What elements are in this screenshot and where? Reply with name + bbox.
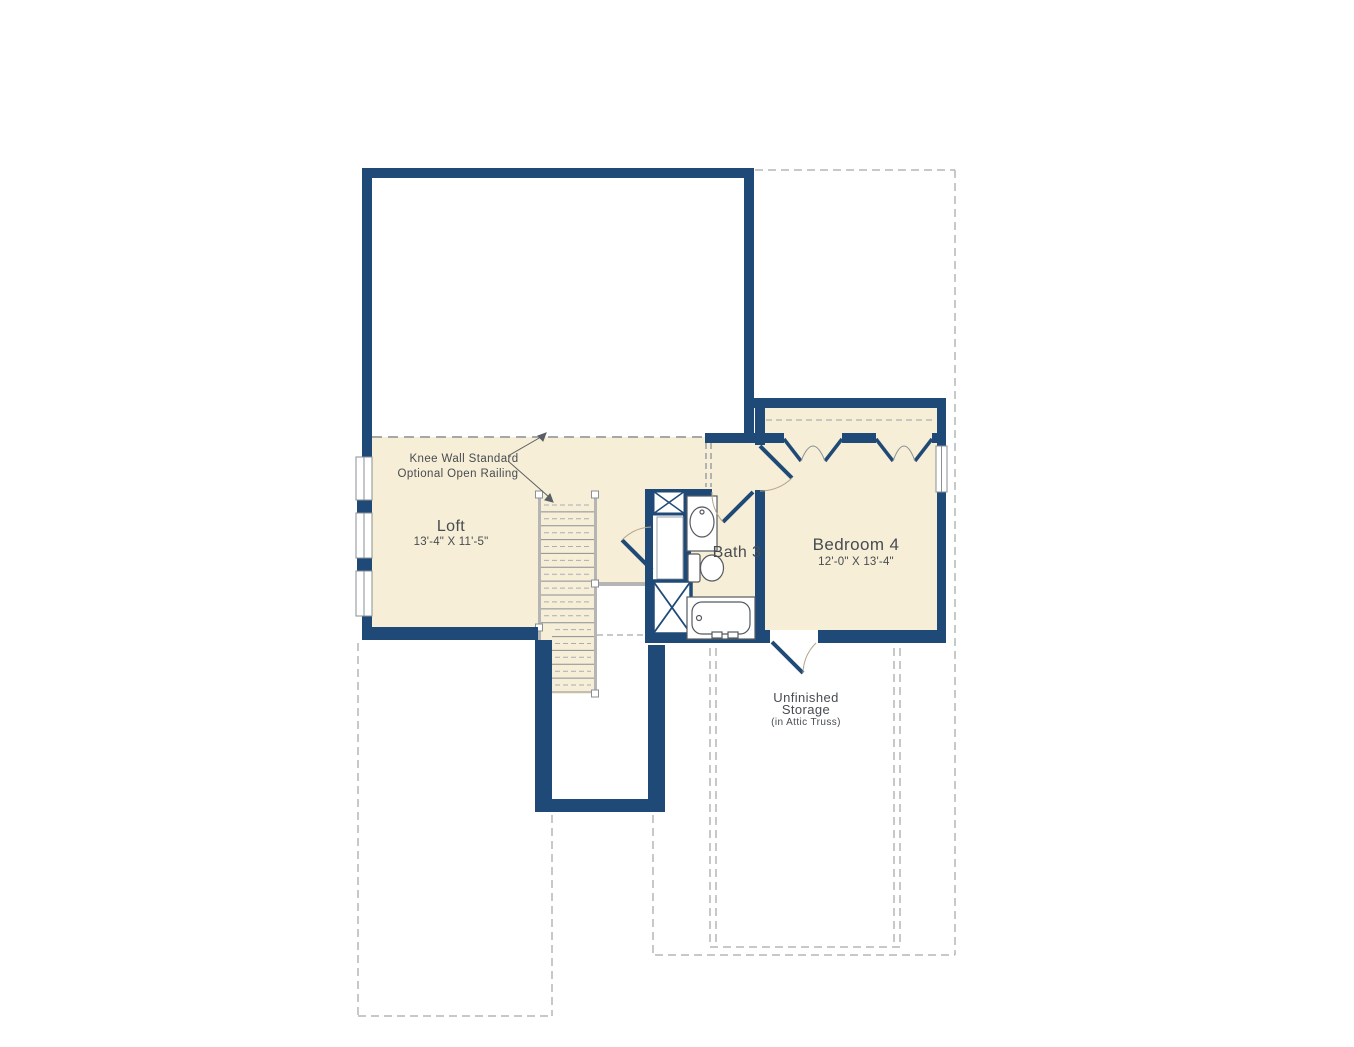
linen-closet-bottom xyxy=(653,581,691,634)
stair-floor-upper xyxy=(541,496,595,644)
floor-plan-page: Knee Wall Standard Optional Open Railing… xyxy=(0,0,1354,1047)
wall-window-mullion-b xyxy=(357,558,372,571)
bedroom-label: Bedroom 4 xyxy=(813,535,900,554)
knee-wall-note-line1: Knee Wall Standard xyxy=(409,453,518,465)
storage-access-door xyxy=(772,642,816,673)
wall-hall-top xyxy=(705,433,760,443)
stair-void xyxy=(597,586,648,630)
storage-label-line3: (in Attic Truss) xyxy=(771,717,841,728)
wall-window-mullion-a xyxy=(357,500,372,513)
bedroom-dims: 12'-0" X 13'-4" xyxy=(818,556,894,568)
hall-railing xyxy=(597,582,652,586)
wall-closet-front-a xyxy=(760,433,784,443)
storage-label-line2: Storage xyxy=(782,702,830,717)
wall-closet-front-b xyxy=(842,433,876,443)
stair-rail-left xyxy=(538,494,541,640)
wall-bedroom-bottom xyxy=(818,630,946,643)
hall-floor xyxy=(597,437,755,498)
wall-stairwell-right xyxy=(648,645,665,812)
wall-loft-left-a xyxy=(362,440,372,458)
bathtub xyxy=(687,597,755,639)
wall-closet-front-c xyxy=(932,433,946,443)
loft-window-1 xyxy=(356,457,372,500)
wall-openroom-left xyxy=(362,168,372,440)
vanity-sink xyxy=(687,496,717,551)
bedroom-window xyxy=(936,446,947,492)
wall-stairwell-left xyxy=(535,640,552,812)
loft-window-2 xyxy=(356,513,372,558)
wall-bedroom-top xyxy=(753,398,946,408)
cabinet-chase xyxy=(657,517,683,579)
wall-loft-bottom xyxy=(362,627,538,640)
wall-openroom-top xyxy=(362,168,754,178)
bath-label: Bath 3 xyxy=(713,544,762,561)
knee-wall-note-line2: Optional Open Railing xyxy=(398,468,519,480)
stair-floor-lower xyxy=(552,640,594,694)
loft-label: Loft xyxy=(437,518,465,535)
stair-rail-right xyxy=(594,494,597,694)
loft-window-3 xyxy=(356,571,372,616)
wall-stairwell-bottom xyxy=(535,799,665,812)
loft-dims: 13'-4" X 11'-5" xyxy=(414,536,489,548)
linen-closet-top xyxy=(653,491,685,514)
wall-openroom-right xyxy=(744,168,754,443)
floor-plan-drawing: Knee Wall Standard Optional Open Railing… xyxy=(0,0,1354,1047)
